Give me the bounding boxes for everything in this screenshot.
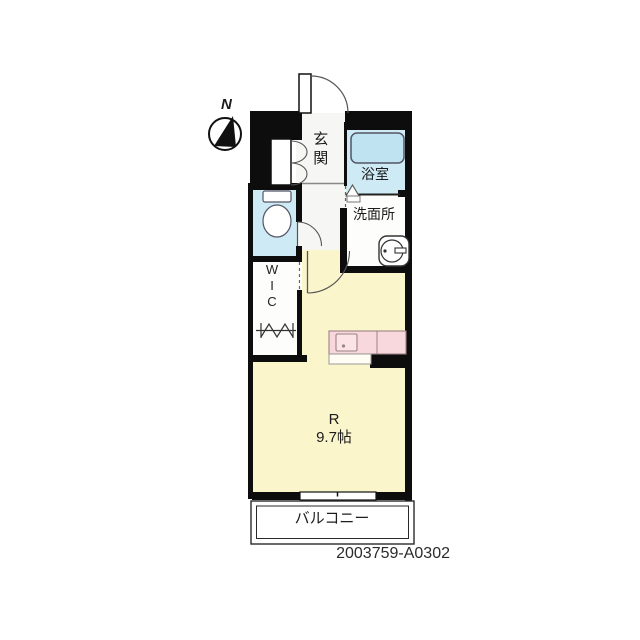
main-room-label: R: [294, 411, 374, 428]
plan-code-label: 2003759-A0302: [330, 545, 450, 563]
wall: [376, 492, 407, 500]
compass-north-label: N: [221, 96, 232, 113]
bathroom-label: 浴室: [346, 166, 404, 182]
wic-label: W I C: [260, 262, 284, 309]
bathtub-icon: [351, 133, 404, 163]
wic-label-line: I: [270, 278, 274, 293]
washbasin-drain-icon: [383, 249, 386, 252]
wall: [345, 111, 412, 130]
genkan-label: 玄関: [311, 131, 328, 169]
floor-plan-drawing: [0, 0, 640, 640]
bath-door-step: [347, 196, 360, 202]
washroom-label: 洗面所: [345, 206, 403, 222]
floor-plan: N 玄関 浴室 洗面所 W I C R 9.7帖 バルコニー 2003759-A…: [0, 0, 640, 640]
wall: [248, 355, 307, 362]
entrance-door-leaf: [299, 74, 311, 113]
wall: [340, 266, 406, 273]
kitchen-sink-icon: [336, 334, 357, 351]
wall: [250, 111, 302, 140]
wall: [296, 190, 302, 222]
wall: [250, 140, 272, 186]
wall: [297, 290, 302, 362]
wall: [370, 353, 406, 368]
wic-label-line: W: [266, 262, 278, 277]
kitchen-sink-drain-icon: [342, 344, 345, 347]
wall: [405, 111, 412, 501]
washbasin-faucet-icon: [395, 248, 406, 253]
toilet-bowl-icon: [263, 205, 291, 237]
wall: [248, 183, 253, 499]
main-room-size-label: 9.7帖: [294, 429, 374, 446]
compass: [209, 116, 241, 150]
balcony-label: バルコニー: [271, 510, 393, 527]
shoe-cabinet: [271, 139, 291, 185]
entrance-door-arc: [311, 76, 348, 113]
wall: [252, 492, 300, 500]
toilet-tank-icon: [263, 191, 291, 202]
kitchen-counter-base: [329, 354, 371, 364]
wic-label-line: C: [267, 294, 276, 309]
